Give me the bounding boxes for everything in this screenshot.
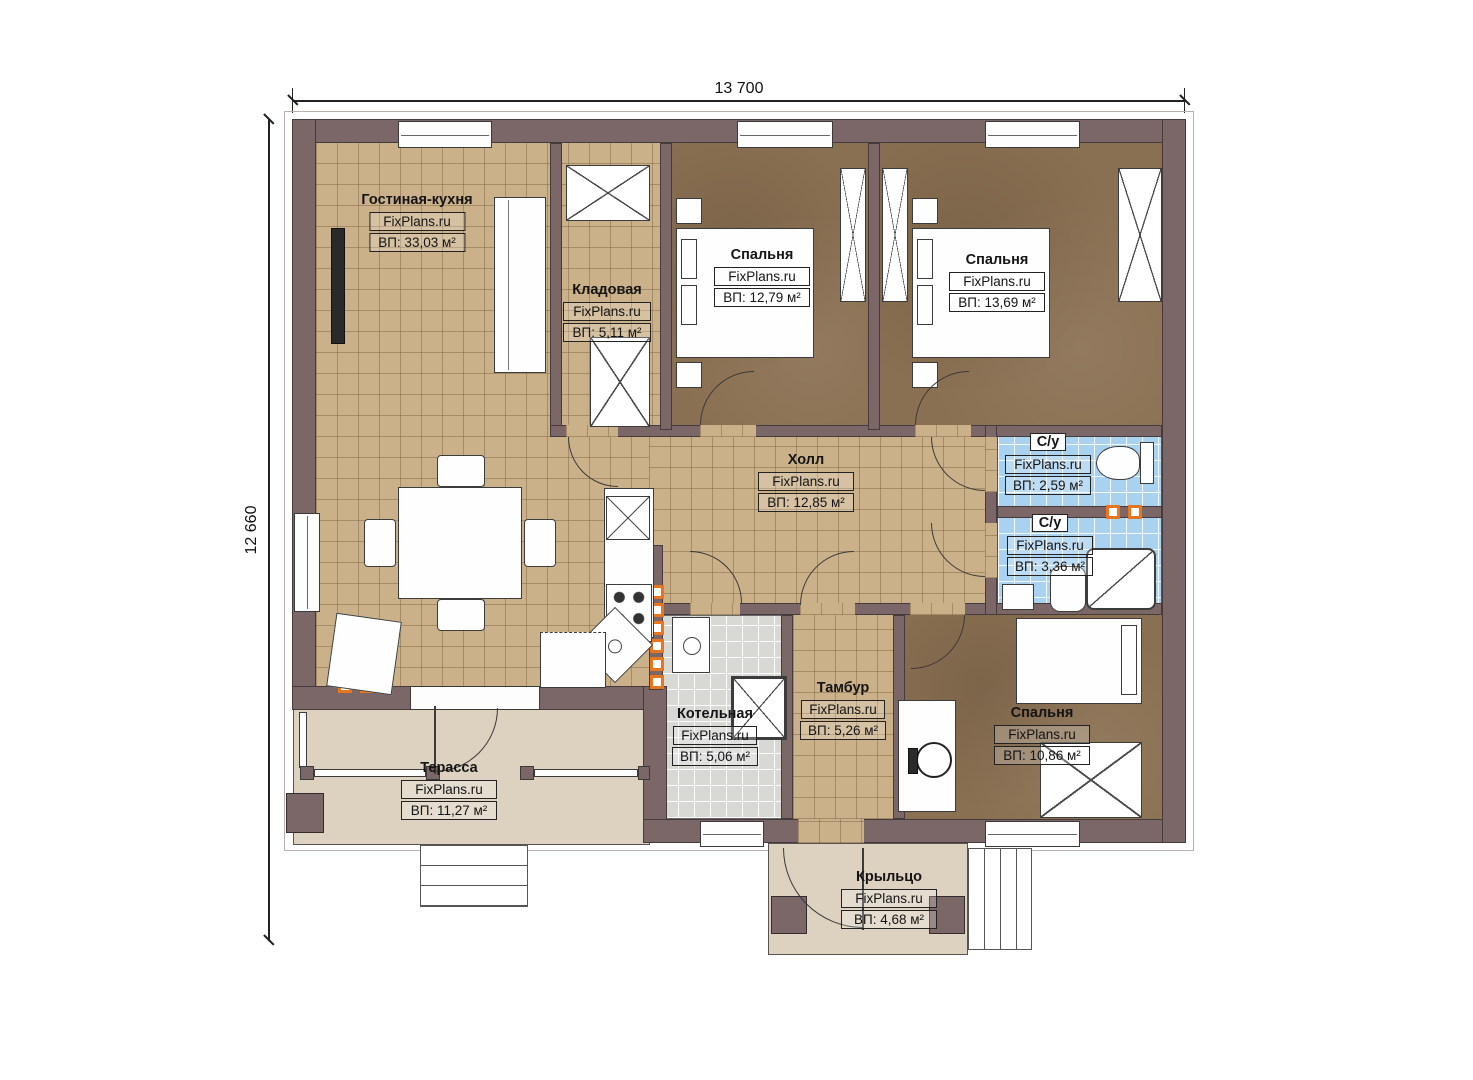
room-label-living: Гостиная-кухня FixPlans.ru ВП: 33,03 м² bbox=[361, 192, 472, 252]
brand-box: FixPlans.ru bbox=[801, 700, 885, 719]
brand-box: FixPlans.ru bbox=[369, 212, 465, 231]
area-box: ВП: 5,11 м² bbox=[563, 323, 651, 342]
room-name: Спальня bbox=[731, 247, 794, 263]
room-label-wc1: С/у FixPlans.ru ВП: 2,59 м² bbox=[1005, 433, 1091, 495]
area-box: ВП: 33,03 м² bbox=[369, 233, 465, 252]
brand-box: FixPlans.ru bbox=[841, 889, 937, 908]
brand-box: FixPlans.ru bbox=[563, 302, 651, 321]
window-top-2 bbox=[737, 121, 833, 148]
terrace-steps bbox=[420, 845, 528, 907]
sofa bbox=[494, 197, 546, 373]
pillow bbox=[917, 285, 933, 325]
partition-bedroom1-bedroom2 bbox=[868, 143, 880, 430]
pillow bbox=[681, 239, 697, 279]
door-gap-wc2 bbox=[985, 523, 997, 578]
room-name: Котельная bbox=[677, 706, 753, 722]
room-name: Тамбур bbox=[817, 680, 870, 696]
window-bottom-2 bbox=[985, 821, 1080, 847]
brand-box: FixPlans.ru bbox=[673, 726, 757, 745]
storage-shelf bbox=[566, 165, 650, 221]
vent-icon bbox=[1106, 505, 1120, 519]
wardrobe bbox=[1118, 168, 1162, 302]
area-box: ВП: 12,79 м² bbox=[714, 288, 810, 307]
room-label-porch: Крыльцо FixPlans.ru ВП: 4,68 м² bbox=[841, 869, 937, 929]
brand-box: FixPlans.ru bbox=[1005, 455, 1091, 474]
area-box: ВП: 10,86 м² bbox=[994, 746, 1090, 765]
railing-post bbox=[520, 766, 534, 780]
room-name: Крыльцо bbox=[856, 869, 922, 885]
wall-left bbox=[292, 119, 316, 710]
kitchen-corner-counter bbox=[540, 632, 606, 688]
door-gap-porch bbox=[798, 819, 864, 843]
dimension-line-top bbox=[293, 100, 1185, 102]
desk-chair-back bbox=[908, 748, 918, 774]
room-name: Спальня bbox=[1011, 705, 1074, 721]
brand-box: FixPlans.ru bbox=[949, 272, 1045, 291]
floor-plan: 13 700 12 660 bbox=[0, 0, 1473, 1080]
door-gap-bedroom1 bbox=[700, 425, 756, 437]
terrace-railing-bar bbox=[534, 769, 638, 777]
room-name: Спальня bbox=[966, 252, 1029, 268]
area-box: ВП: 13,69 м² bbox=[949, 293, 1045, 312]
door-gap-wc1 bbox=[985, 437, 997, 492]
terrace-column bbox=[286, 793, 324, 833]
porch-steps bbox=[968, 848, 1032, 950]
room-name: Кладовая bbox=[572, 282, 641, 298]
washing-machine bbox=[672, 617, 710, 673]
room-name: Холл bbox=[788, 452, 824, 468]
brand-box: FixPlans.ru bbox=[994, 725, 1090, 744]
pillow bbox=[917, 239, 933, 279]
room-label-boiler: Котельная FixPlans.ru ВП: 5,06 м² bbox=[672, 706, 758, 766]
kitchen-appliance bbox=[606, 496, 650, 540]
door-gap-boiler bbox=[690, 603, 740, 615]
nightstand bbox=[676, 362, 702, 388]
storage-shelf bbox=[590, 337, 650, 427]
pillow bbox=[681, 285, 697, 325]
nightstand bbox=[912, 198, 938, 224]
sofa-seat-line bbox=[508, 200, 509, 370]
room-label-hall: Холл FixPlans.ru ВП: 12,85 м² bbox=[758, 452, 854, 512]
toilet-bowl bbox=[1096, 446, 1140, 480]
room-label-terrace: Терасса FixPlans.ru ВП: 11,27 м² bbox=[401, 760, 497, 820]
window-top-3 bbox=[985, 121, 1080, 148]
dimension-height-label: 12 660 bbox=[243, 506, 261, 555]
tv-unit bbox=[331, 228, 345, 344]
vent-icon bbox=[650, 675, 664, 689]
vent-icon bbox=[650, 657, 664, 671]
railing-post bbox=[638, 766, 650, 780]
room-label-tambour: Тамбур FixPlans.ru ВП: 5,26 м² bbox=[800, 680, 886, 740]
wardrobe bbox=[840, 168, 866, 302]
room-label-bedroom1: Спальня FixPlans.ru ВП: 12,79 м² bbox=[714, 247, 810, 307]
brand-box: FixPlans.ru bbox=[1007, 536, 1093, 555]
window-bottom-1 bbox=[700, 821, 764, 847]
wall-right bbox=[1162, 119, 1186, 843]
area-box: ВП: 5,06 м² bbox=[672, 747, 758, 766]
room-label-bedroom2: Спальня FixPlans.ru ВП: 13,69 м² bbox=[949, 252, 1045, 312]
area-box: ВП: 12,85 м² bbox=[758, 493, 854, 512]
area-box: ВП: 11,27 м² bbox=[401, 801, 497, 820]
window-left bbox=[294, 513, 320, 612]
partition-storage-bedroom1 bbox=[660, 143, 672, 430]
area-box: ВП: 3,36 м² bbox=[1007, 557, 1093, 576]
bathroom-sink bbox=[1002, 584, 1034, 610]
window-top-1 bbox=[398, 121, 492, 148]
area-box: ВП: 4,68 м² bbox=[841, 910, 937, 929]
area-box: ВП: 2,59 м² bbox=[1005, 476, 1091, 495]
chair bbox=[437, 455, 485, 487]
brand-box: FixPlans.ru bbox=[758, 472, 854, 491]
room-label-wc2: С/у FixPlans.ru ВП: 3,36 м² bbox=[1007, 514, 1093, 576]
vent-icon bbox=[1128, 505, 1142, 519]
bed-single bbox=[1016, 618, 1142, 704]
railing-post bbox=[300, 766, 314, 780]
door-gap-bedroom2 bbox=[915, 425, 971, 437]
brand-box: FixPlans.ru bbox=[714, 267, 810, 286]
pillow bbox=[1121, 625, 1137, 695]
terrace-railing-left bbox=[299, 712, 307, 768]
porch-column bbox=[771, 896, 807, 934]
dining-table bbox=[398, 487, 522, 599]
door-gap-terrace bbox=[410, 686, 540, 710]
armchair bbox=[326, 613, 402, 695]
room-name: Гостиная-кухня bbox=[361, 192, 472, 208]
partition-living-storage bbox=[550, 143, 562, 430]
room-name: С/у bbox=[1032, 514, 1069, 532]
dimension-width-label: 13 700 bbox=[715, 80, 764, 98]
brand-box: FixPlans.ru bbox=[401, 780, 497, 799]
room-label-bedroom3: Спальня FixPlans.ru ВП: 10,86 м² bbox=[994, 705, 1090, 765]
wardrobe bbox=[882, 168, 908, 302]
chair bbox=[524, 519, 556, 567]
room-name: Терасса bbox=[420, 760, 478, 776]
door-gap-bedroom3 bbox=[910, 603, 965, 615]
room-label-storage: Кладовая FixPlans.ru ВП: 5,11 м² bbox=[563, 282, 651, 342]
desk-chair bbox=[916, 742, 952, 778]
chair bbox=[364, 519, 396, 567]
nightstand bbox=[676, 198, 702, 224]
chair bbox=[437, 599, 485, 631]
toilet-tank bbox=[1140, 442, 1154, 484]
shower-tray bbox=[1086, 548, 1156, 610]
room-name: С/у bbox=[1030, 433, 1067, 451]
area-box: ВП: 5,26 м² bbox=[800, 721, 886, 740]
dimension-line-left bbox=[268, 119, 270, 941]
